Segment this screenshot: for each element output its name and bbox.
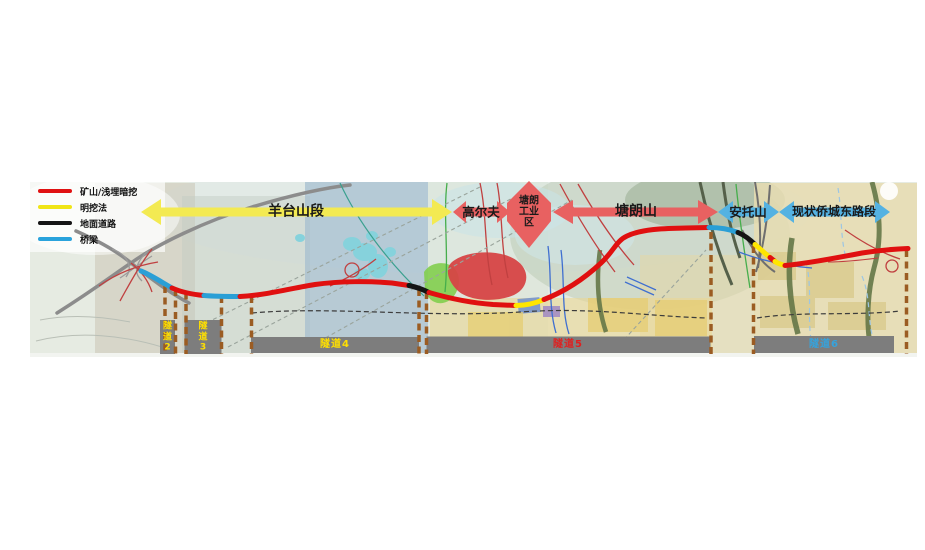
section-label-tanglang-industrial-line1: 塘朗 [512, 196, 546, 207]
section-label-qiaocheng-east: 现状侨城东路段 [792, 206, 876, 219]
legend-swatch-opencut [38, 205, 72, 209]
section-label-antuoshan: 安托山 [729, 205, 767, 218]
section-label-tanglang-industrial: 塘朗 工业 区 [512, 196, 546, 229]
legend-label-bridge: 桥梁 [80, 233, 98, 246]
legend-swatch-mining [38, 189, 72, 193]
section-label-yangtaishan: 羊台山段 [268, 205, 324, 220]
legend-item-opencut: 明挖法 [38, 199, 137, 215]
legend-label-ground: 地面道路 [80, 217, 116, 230]
tunnel-4-label: 隧道4 [320, 340, 350, 351]
tunnel-3-label: 隧道3 [198, 321, 209, 353]
section-label-golf: 高尔夫 [462, 205, 500, 218]
tunnel-2-label: 隧道2 [162, 321, 173, 353]
legend-swatch-ground [38, 221, 72, 225]
tunnel-6-label: 隧道6 [809, 339, 839, 350]
section-label-tanglang-industrial-line2: 工业 [512, 207, 546, 218]
legend-item-ground: 地面道路 [38, 215, 137, 231]
slide-canvas: 矿山/浅埋暗挖 明挖法 地面道路 桥梁 羊台山段 高尔夫 塘朗 工业 区 塘朗山… [0, 0, 925, 550]
legend-item-mining: 矿山/浅埋暗挖 [38, 183, 137, 199]
route-bridge-segment-2 [204, 296, 240, 297]
legend-label-mining: 矿山/浅埋暗挖 [80, 185, 137, 198]
section-label-tanglang-industrial-line3: 区 [512, 218, 546, 229]
legend: 矿山/浅埋暗挖 明挖法 地面道路 桥梁 [38, 183, 137, 247]
alignment-map [0, 0, 925, 550]
section-label-tanglangshan: 塘朗山 [615, 205, 657, 220]
map-background [10, 150, 917, 357]
legend-swatch-bridge [38, 237, 72, 241]
legend-item-bridge: 桥梁 [38, 231, 137, 247]
legend-label-opencut: 明挖法 [80, 201, 107, 214]
tunnel-5-label: 隧道5 [553, 340, 583, 351]
